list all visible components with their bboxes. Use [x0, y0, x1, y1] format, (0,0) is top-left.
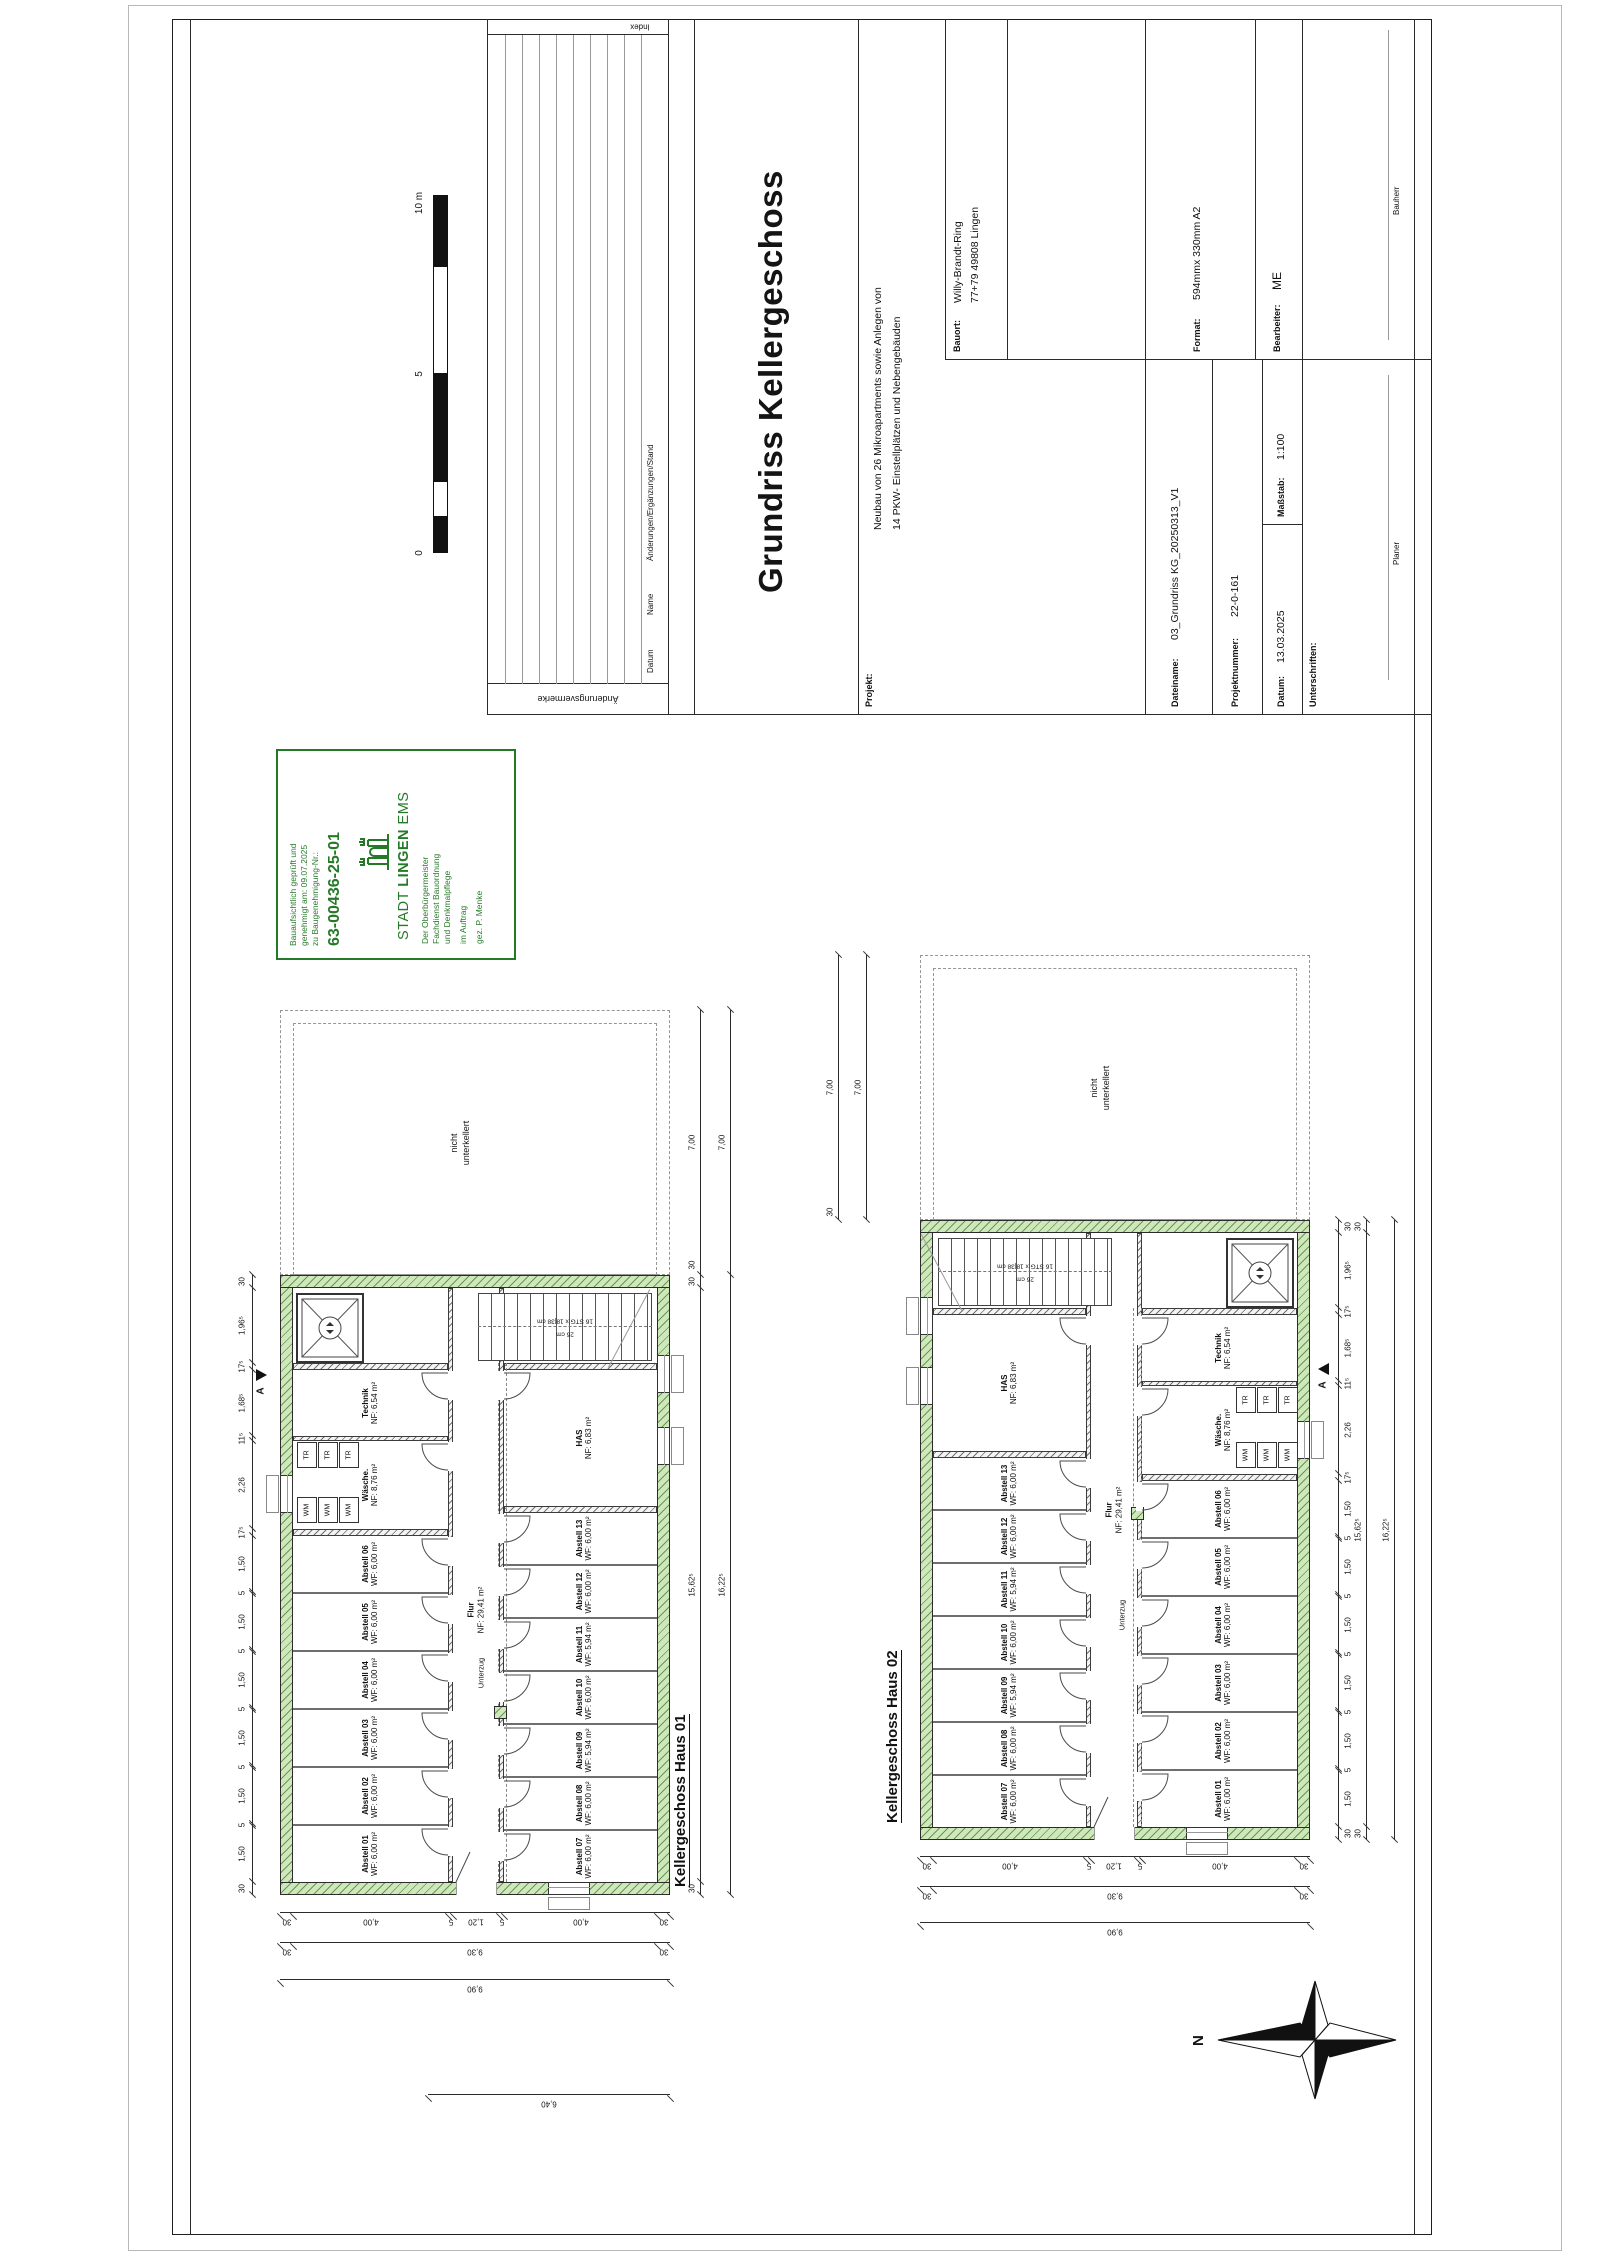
dim-label: 4,00	[1212, 1862, 1228, 1871]
light-well	[1186, 1842, 1228, 1855]
light-well	[906, 1297, 919, 1335]
stair-note: 16 STG x 18|38 cm	[997, 1263, 1053, 1270]
dim-label: 30	[922, 1862, 931, 1871]
dim-label: 4,00	[1002, 1862, 1018, 1871]
dim-label: 5	[1344, 1536, 1353, 1540]
dim-label: 1,20	[1106, 1862, 1122, 1871]
entry-door-leaf	[0, 0, 1600, 2265]
dim-label: 15,62⁵	[1354, 1518, 1363, 1541]
window-line	[927, 1297, 928, 1335]
stair-note-2: 26 cm	[1016, 1276, 1034, 1283]
dim-label: 7,00	[854, 1080, 863, 1096]
dim-chain-width-outer	[920, 1922, 1310, 1923]
dim-label: 11⁵	[1344, 1378, 1353, 1390]
section-marker	[1318, 1363, 1329, 1375]
scale-bar-segment	[433, 266, 448, 374]
dim-label: 30	[826, 1208, 835, 1217]
window-line	[927, 1367, 928, 1405]
revision-row-line	[522, 35, 523, 684]
dim-label: 17⁵	[1344, 1471, 1353, 1483]
revision-row-line	[607, 35, 608, 684]
scale-bar-segment	[433, 374, 448, 481]
dim-label: 5	[1137, 1862, 1141, 1871]
dim-label: 1,50	[1344, 1501, 1353, 1517]
dim-label: 5	[1344, 1652, 1353, 1656]
dim-chain-ext	[838, 955, 839, 1220]
nicht-unterkellert-label: nicht	[1089, 1078, 1099, 1097]
plan-heading: Kellergeschoss Haus 02	[884, 1650, 902, 1823]
scale-bar-segment	[433, 481, 448, 517]
nicht-unterkellert-label: unterkellert	[1101, 1066, 1111, 1111]
dim-chain-length-outer	[1394, 1220, 1395, 1840]
dim-label: 5	[1344, 1768, 1353, 1772]
dim-label: 5	[1086, 1862, 1090, 1871]
dim-label: 30	[922, 1892, 931, 1901]
window-line	[1304, 1421, 1305, 1459]
dim-chain-depth	[920, 1856, 1310, 1857]
revision-row-line	[505, 35, 506, 684]
dim-chain-length-inner	[1366, 1220, 1367, 1840]
dim-chain-ext	[866, 955, 867, 1220]
scale-bar-segment	[433, 517, 448, 553]
revision-row-line	[573, 35, 574, 684]
dim-label: 30	[1344, 1829, 1353, 1838]
dim-label: 30	[1354, 1829, 1363, 1838]
section-marker-label: A	[1318, 1381, 1329, 1388]
elevator-icon	[1226, 1238, 1294, 1308]
dim-label: 2,26	[1344, 1422, 1353, 1438]
stair-walk-line	[938, 1271, 1112, 1272]
scale-bar-segment	[433, 195, 448, 266]
dim-label: 1,50	[1344, 1733, 1353, 1749]
dim-chain-width-inner	[920, 1886, 1310, 1887]
dim-label: 16,22⁵	[1382, 1518, 1391, 1541]
dim-label: 1,50	[1344, 1559, 1353, 1575]
dim-label: 9,90	[1107, 1928, 1123, 1937]
nicht-unterkellert-inner	[933, 968, 1297, 1220]
window-line	[1186, 1833, 1228, 1834]
dim-label: 1,50	[1344, 1617, 1353, 1633]
dim-label: 5	[1344, 1710, 1353, 1714]
stairs	[938, 1238, 1112, 1306]
light-well	[906, 1367, 919, 1405]
window-symbol	[1186, 1827, 1228, 1840]
dim-label: 1,50	[1344, 1791, 1353, 1807]
revision-row-line	[556, 35, 557, 684]
drawing-sheet: Änderungsvermerke Index Datum Name Änder…	[0, 0, 1600, 2265]
dim-label: 5	[1344, 1594, 1353, 1598]
dim-label: 30	[1344, 1222, 1353, 1231]
dim-label: 30	[1299, 1862, 1308, 1871]
revision-row-line	[624, 35, 625, 684]
elevator-symbol	[1226, 1238, 1294, 1308]
light-well	[1311, 1421, 1324, 1459]
dim-label: 30	[1354, 1222, 1363, 1231]
dim-label: 1,68⁵	[1344, 1339, 1353, 1358]
revision-row-line	[641, 35, 642, 684]
dim-label: 1,96⁵	[1344, 1261, 1353, 1280]
dim-label: 1,50	[1344, 1675, 1353, 1691]
dim-label: 30	[1299, 1892, 1308, 1901]
dim-label: 9,30	[1107, 1892, 1123, 1901]
dim-label: 7,00	[826, 1080, 835, 1096]
dim-label: 17⁵	[1344, 1305, 1353, 1317]
revision-row-line	[539, 35, 540, 684]
drawing-page: Änderungsvermerke Index Datum Name Änder…	[0, 0, 1600, 2265]
revision-row-line	[590, 35, 591, 684]
